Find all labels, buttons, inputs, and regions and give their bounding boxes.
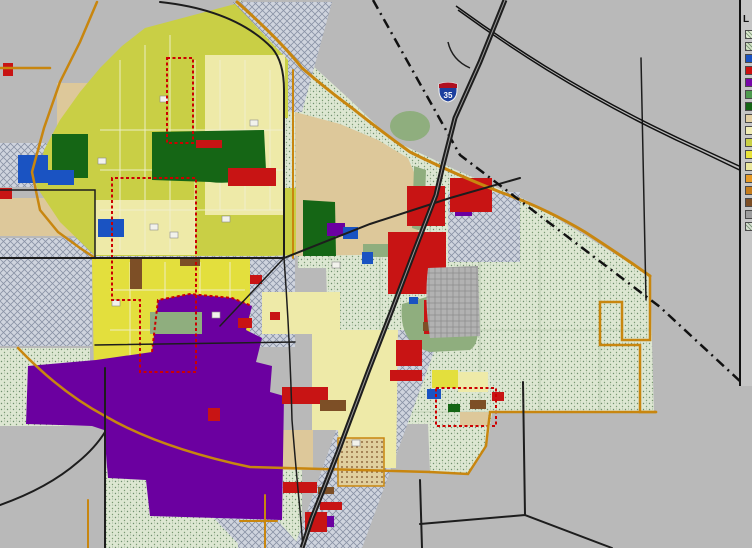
legend-swatch <box>745 210 752 219</box>
legend-swatch <box>745 150 752 159</box>
legend-panel: L <box>741 0 752 386</box>
legend-swatch <box>745 174 752 183</box>
interstate-shield: 35 <box>439 83 457 103</box>
legend-title: L <box>743 14 749 25</box>
zoning-map-viewport[interactable]: 35 L <box>0 0 752 548</box>
legend-swatch <box>745 102 752 111</box>
legend-swatch <box>745 90 752 99</box>
legend-swatch <box>745 198 752 207</box>
legend-swatch <box>745 114 752 123</box>
legend-swatch <box>745 30 752 39</box>
legend-swatch <box>745 186 752 195</box>
legend-swatch <box>745 42 752 51</box>
legend-swatch <box>745 126 752 135</box>
legend-swatch <box>745 162 752 171</box>
legend-swatch <box>745 222 752 231</box>
legend-swatch <box>745 54 752 63</box>
legend-swatches <box>745 30 752 234</box>
legend-swatch <box>745 66 752 75</box>
legend-swatch <box>745 78 752 87</box>
zoning-map-canvas: 35 <box>0 0 752 548</box>
legend-swatch <box>745 138 752 147</box>
interstate-shield-number: 35 <box>444 91 453 100</box>
